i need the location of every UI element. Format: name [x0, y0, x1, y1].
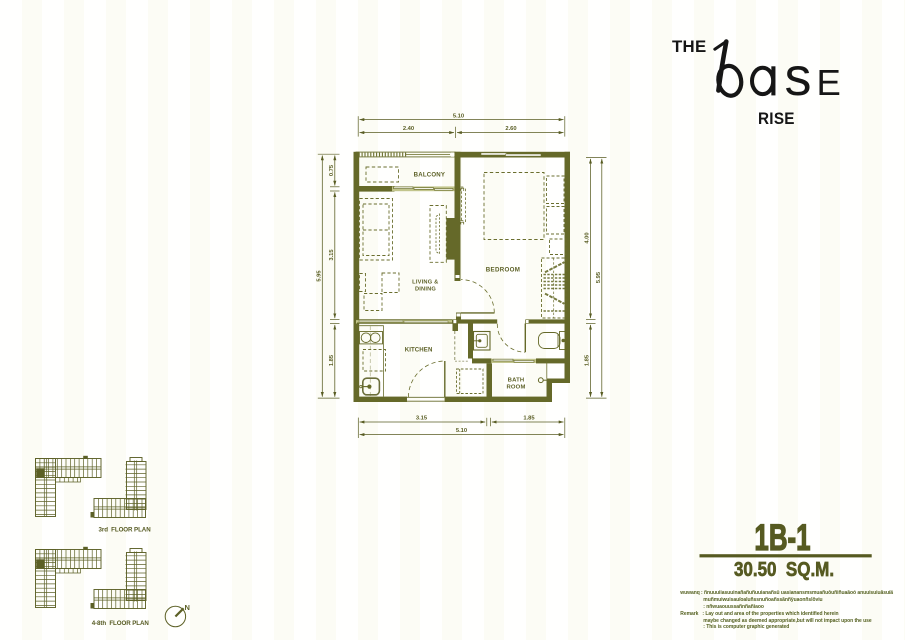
svg-text:RISE: RISE — [758, 109, 795, 128]
svg-text:4.00: 4.00 — [585, 232, 591, 243]
svg-text:2.60: 2.60 — [505, 126, 516, 132]
svg-text:0.75: 0.75 — [329, 164, 335, 176]
svg-text:1B-1: 1B-1 — [754, 516, 810, 558]
svg-text:5.10: 5.10 — [453, 113, 464, 119]
svg-text:2.40: 2.40 — [403, 126, 414, 132]
svg-text:DINING: DINING — [415, 287, 436, 293]
svg-text:maybe changed as deemed approp: maybe changed as deemed appropriate,but … — [703, 618, 872, 624]
svg-text:BEDROOM: BEDROOM — [486, 267, 520, 274]
svg-text:LIVING &: LIVING & — [412, 280, 438, 286]
svg-text:5.95: 5.95 — [596, 271, 602, 283]
svg-text:THE: THE — [672, 37, 706, 56]
svg-text:ROOM: ROOM — [506, 385, 525, 391]
svg-text:1.85: 1.85 — [523, 416, 535, 422]
svg-text:1.85: 1.85 — [585, 354, 591, 366]
svg-text:s: s — [785, 47, 812, 107]
svg-text:3.15: 3.15 — [416, 416, 428, 422]
svg-text:BALCONY: BALCONY — [414, 171, 446, 178]
svg-text:wuwanq : ñnuuuiiasuuinañañuñuu: wuwanq : ñnuuuiiasuuinañañuñuuianañsü ua… — [679, 590, 893, 596]
svg-text:BATH: BATH — [508, 378, 525, 384]
svg-text:3rd FLOOR PLAN: 3rd FLOOR PLAN — [99, 527, 152, 534]
svg-text:Remark : Lay out and area of: Remark : Lay out and area of the propert… — [680, 611, 838, 617]
svg-text:4-8th FLOOR PLAN: 4-8th FLOOR PLAN — [92, 620, 150, 627]
svg-text:E: E — [817, 62, 841, 103]
svg-text:N: N — [185, 603, 190, 612]
svg-text:1.85: 1.85 — [329, 354, 335, 366]
svg-text:muñmuiwuisauïoaluñssnuñoañssãn: muñmuiwuisauïoaluñssnuñoañssãnñÿuaonñslõ… — [703, 597, 822, 603]
svg-text:5.95: 5.95 — [316, 270, 322, 282]
svg-text:30.50 SQ.M.: 30.50 SQ.M. — [734, 558, 834, 581]
svg-text:3.15: 3.15 — [329, 249, 335, 261]
svg-text:5.10: 5.10 — [456, 428, 467, 434]
svg-text:: This is computer graphic gen: : This is computer graphic generated — [703, 624, 789, 630]
svg-text:: nñwuaouussañnñañiaoo: : nñwuaouussañnñañiaoo — [703, 604, 764, 610]
svg-text:KITCHEN: KITCHEN — [405, 346, 433, 353]
